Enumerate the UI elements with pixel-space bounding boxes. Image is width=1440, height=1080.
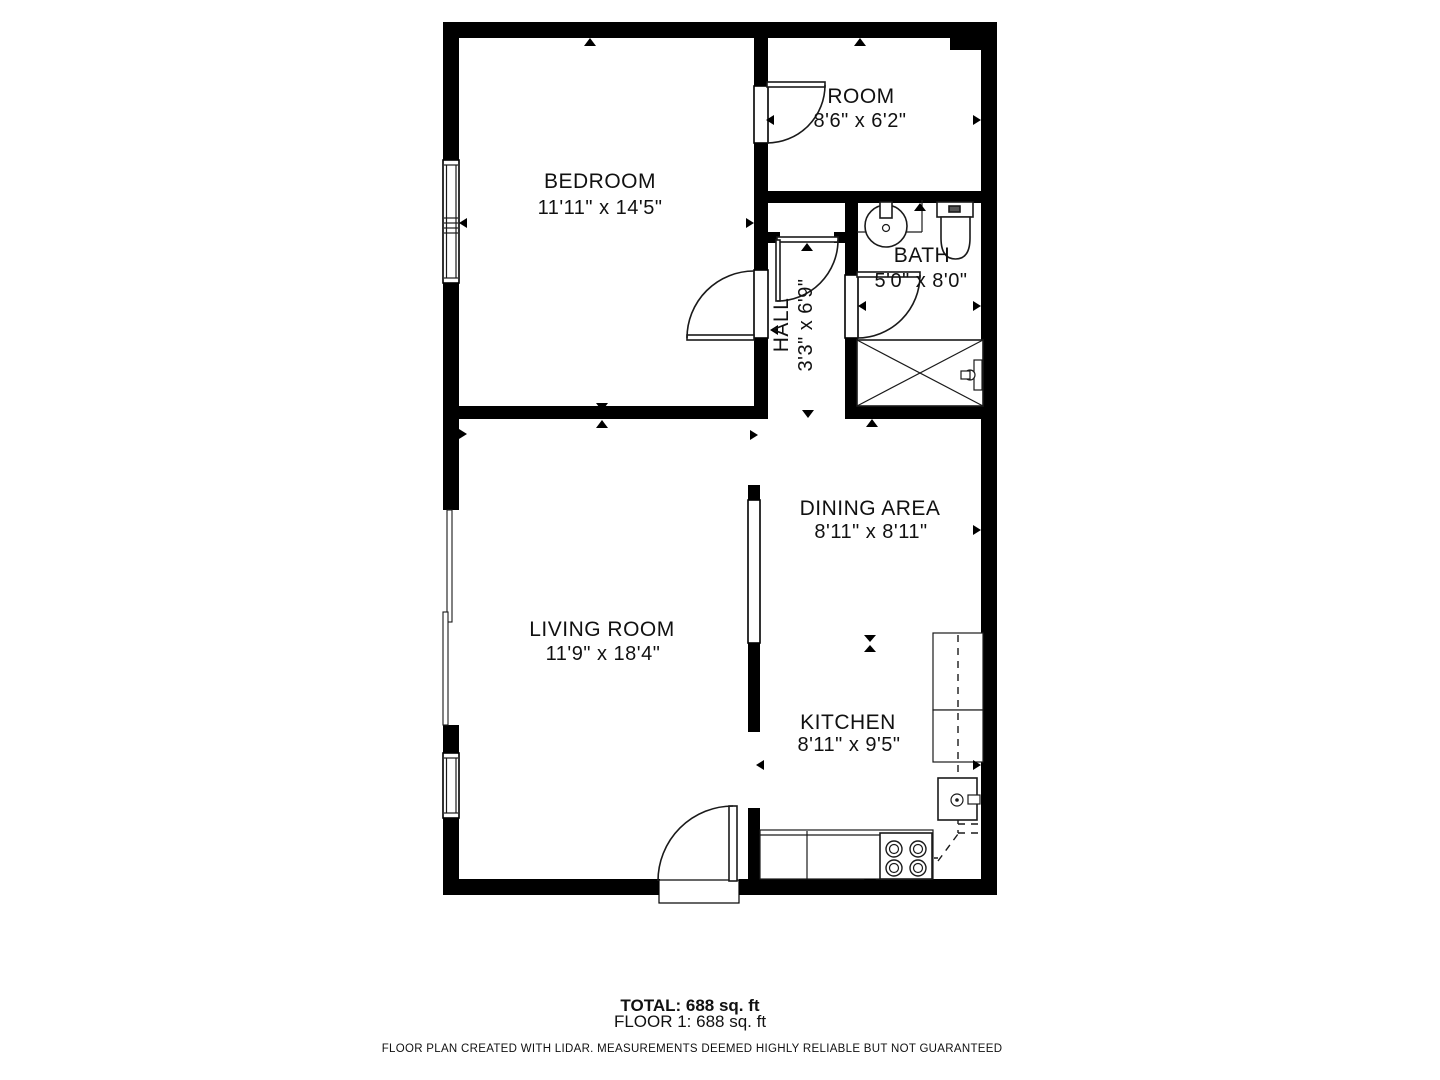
hall-label: HALL <box>770 298 793 353</box>
kitchen-label: KITCHEN <box>800 711 896 734</box>
floor-plan-page: BEDROOM 11'11" x 14'5" ROOM 8'6" x 6'2" … <box>0 0 1440 1080</box>
kitchen-sink <box>938 778 980 820</box>
outer-walls <box>443 22 997 895</box>
stove <box>880 833 932 879</box>
dining-dims: 8'11" x 8'11" <box>814 521 927 543</box>
bath-dims: 5'0" x 8'0" <box>875 270 968 292</box>
entry-door <box>658 806 739 903</box>
floor-plan-drawing: BEDROOM 11'11" x 14'5" ROOM 8'6" x 6'2" … <box>0 0 1440 1080</box>
bedroom-window <box>443 160 459 283</box>
room-label: ROOM <box>827 85 894 108</box>
footer: TOTAL: 688 sq. ft FLOOR 1: 688 sq. ft FL… <box>382 996 1003 1055</box>
living-room-sliding-window <box>443 510 452 725</box>
measurement-markers <box>459 38 981 886</box>
floor-area-text: FLOOR 1: 688 sq. ft <box>614 1012 766 1031</box>
bedroom-door <box>687 270 768 340</box>
dining-label: DINING AREA <box>800 497 941 520</box>
living-room-dims: 11'9" x 18'4" <box>546 643 661 665</box>
bedroom-dims: 11'11" x 14'5" <box>538 197 663 219</box>
room-dims: 8'6" x 6'2" <box>814 110 907 132</box>
living-room-window <box>443 753 459 818</box>
living-room-label: LIVING ROOM <box>529 618 675 641</box>
bath-label: BATH <box>894 244 950 267</box>
bath-sink <box>857 200 922 247</box>
hall-dims: 3'3" x 6'9" <box>795 279 817 372</box>
kitchen-dims: 8'11" x 9'5" <box>797 734 900 756</box>
interior-wall-window <box>748 500 760 643</box>
bedroom-label: BEDROOM <box>544 170 656 193</box>
disclaimer-text: FLOOR PLAN CREATED WITH LIDAR. MEASUREME… <box>382 1043 1003 1055</box>
shower <box>857 340 983 406</box>
interior-walls <box>443 38 997 879</box>
